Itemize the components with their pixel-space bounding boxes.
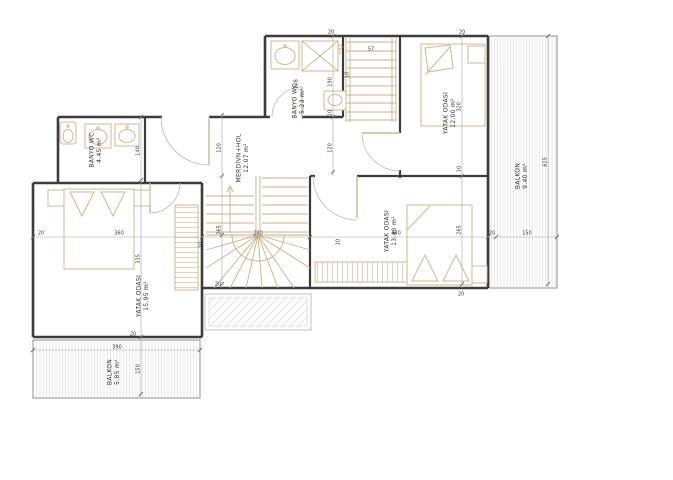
- dim-label: 20: [328, 30, 334, 36]
- dim-label: 335: [136, 254, 142, 264]
- dim-label: 280: [253, 231, 263, 237]
- toilet-symbol: [324, 91, 346, 110]
- room-label-banyo-left: BANYO WC 4.45 m²: [89, 132, 104, 167]
- room-name: BANYO WC: [292, 83, 299, 118]
- floorplan-drawing: 20 360 280 440 20 150 390 57 20 20 20 20…: [0, 0, 673, 480]
- nightstand-symbol: [468, 46, 485, 63]
- room-name: BALKON: [515, 163, 522, 189]
- nightstand-symbol: [48, 190, 64, 206]
- door-bedroom-mid: [313, 176, 357, 220]
- room-area: 13.40 m²: [391, 216, 398, 246]
- room-label-bedroom-top-right: YATAK ODASI 12.00 m²: [443, 92, 458, 135]
- exterior-walls: [33, 36, 488, 337]
- dim-label: 20: [38, 231, 44, 237]
- dim-label: 190: [328, 77, 334, 87]
- room-area: 9.40 m²: [522, 163, 529, 189]
- room-area: 12.00 m²: [450, 98, 457, 128]
- door-hall-left-wing: [161, 117, 209, 165]
- dim-label: 57: [368, 47, 374, 53]
- dim-label: 390: [112, 345, 122, 351]
- dim-label: 360: [114, 231, 124, 237]
- dim-label: 10: [336, 239, 342, 245]
- floorplan-canvas: 20 360 280 440 20 150 390 57 20 20 20 20…: [0, 0, 673, 480]
- room-name: YATAK ODASI: [384, 210, 391, 253]
- room-area: 5.85 m²: [114, 359, 121, 385]
- toilet-symbol: [60, 122, 76, 144]
- dim-label: 10: [457, 166, 463, 172]
- dim-label: 20: [215, 282, 221, 288]
- dim-label: 10: [199, 242, 205, 248]
- nightstand-symbol: [472, 266, 487, 283]
- doors: [150, 87, 400, 220]
- room-name: YATAK ODASI: [136, 275, 143, 318]
- room-name: BANYO WC: [89, 132, 96, 167]
- room-label-banyo-top: BANYO WC 5.23 m²: [292, 83, 307, 118]
- bathroom-top-fixtures: [271, 41, 346, 110]
- room-name: BALKON: [107, 359, 114, 385]
- dim-label: 140: [136, 146, 142, 156]
- room-name: YATAK ODASI: [443, 92, 450, 135]
- dim-label: 20: [459, 30, 465, 36]
- room-label-balcony-right: BALKON 9.40 m²: [515, 163, 530, 189]
- dim-label: 265: [217, 225, 223, 235]
- shower-symbol: [302, 41, 342, 71]
- bedroom-left-furniture: [48, 189, 198, 290]
- room-area: 4.45 m²: [96, 137, 103, 163]
- washbasin-symbol: [115, 124, 139, 146]
- stair-direction-arrow: [227, 186, 233, 233]
- nightstand-symbol: [134, 190, 150, 206]
- wardrobe-symbol: [175, 205, 198, 290]
- room-area: 15.95 m²: [143, 281, 150, 311]
- dim-label: 10: [345, 72, 351, 78]
- dim-label: 120: [217, 143, 223, 153]
- dim-label: 20: [458, 292, 464, 298]
- room-area: 5.23 m²: [299, 88, 306, 114]
- room-name: MERDİVN+HOL: [236, 133, 243, 182]
- dim-label: 265: [457, 225, 463, 235]
- dim-label: 625: [543, 157, 549, 167]
- room-label-balcony-bottom: BALKON 5.85 m²: [107, 359, 122, 385]
- void-hatch-area: [205, 294, 311, 330]
- dim-label: 150: [522, 231, 532, 237]
- door-bedroom-top-right: [362, 133, 400, 171]
- room-label-hall: MERDİVN+HOL 12.07 m²: [236, 133, 251, 182]
- room-label-bedroom-mid: YATAK ODASI 13.40 m²: [384, 210, 399, 253]
- dim-label: 120: [328, 143, 334, 153]
- room-label-bedroom-left: YATAK ODASI 15.95 m²: [136, 275, 151, 318]
- room-area: 12.07 m²: [243, 143, 250, 173]
- washbasin-symbol: [271, 41, 299, 69]
- dim-label: 10: [328, 110, 334, 116]
- dim-label: 320: [457, 102, 463, 112]
- dim-label: 150: [136, 364, 142, 374]
- dim-label: 20: [130, 332, 136, 338]
- dim-label: 20: [489, 231, 495, 237]
